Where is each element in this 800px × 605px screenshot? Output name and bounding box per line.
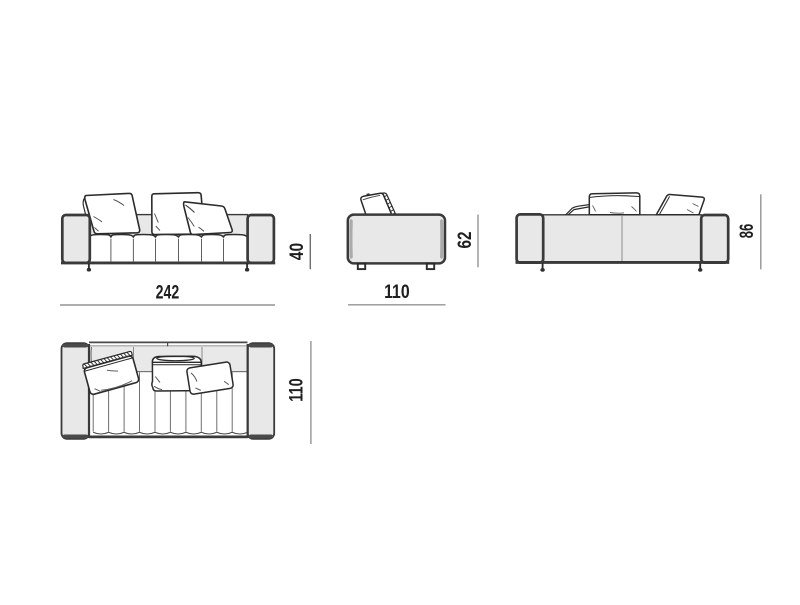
svg-text:62: 62 [455, 232, 476, 249]
svg-text:40: 40 [287, 243, 308, 260]
svg-text:242: 242 [156, 283, 180, 304]
svg-text:86: 86 [737, 224, 758, 239]
svg-text:110: 110 [287, 378, 308, 402]
svg-text:110: 110 [384, 282, 410, 303]
